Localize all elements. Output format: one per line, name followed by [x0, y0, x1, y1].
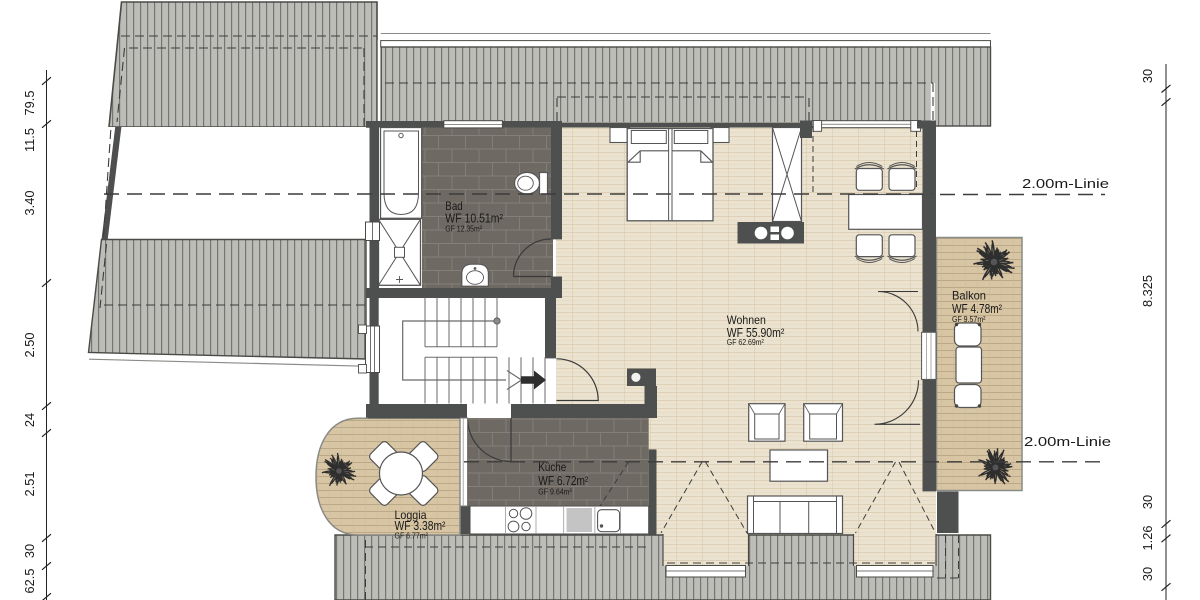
svg-text:2.00m-Linie: 2.00m-Linie	[1024, 434, 1111, 449]
svg-text:GF 12.35m²: GF 12.35m²	[445, 224, 482, 234]
svg-text:30: 30	[22, 544, 37, 558]
svg-text:30: 30	[1140, 567, 1155, 581]
svg-text:62.5: 62.5	[22, 569, 37, 594]
svg-text:79.5: 79.5	[22, 91, 37, 116]
svg-text:GF 9.64m²: GF 9.64m²	[538, 487, 572, 497]
svg-text:1.26: 1.26	[1140, 526, 1155, 551]
svg-text:Küche: Küche	[538, 460, 566, 474]
svg-text:GF 6.77m²: GF 6.77m²	[395, 531, 429, 541]
svg-text:2.51: 2.51	[22, 472, 37, 497]
svg-text:30: 30	[1140, 69, 1155, 83]
svg-text:GF 62.69m²: GF 62.69m²	[727, 337, 764, 347]
svg-text:GF 9.57m²: GF 9.57m²	[952, 314, 986, 324]
svg-text:30: 30	[1140, 495, 1155, 509]
svg-text:11.5: 11.5	[22, 128, 37, 152]
svg-text:2.50: 2.50	[22, 333, 37, 358]
svg-text:8.325: 8.325	[1140, 275, 1155, 307]
svg-text:2.00m-Linie: 2.00m-Linie	[1022, 176, 1109, 191]
svg-text:3.40: 3.40	[22, 191, 37, 216]
svg-text:24: 24	[22, 413, 37, 427]
